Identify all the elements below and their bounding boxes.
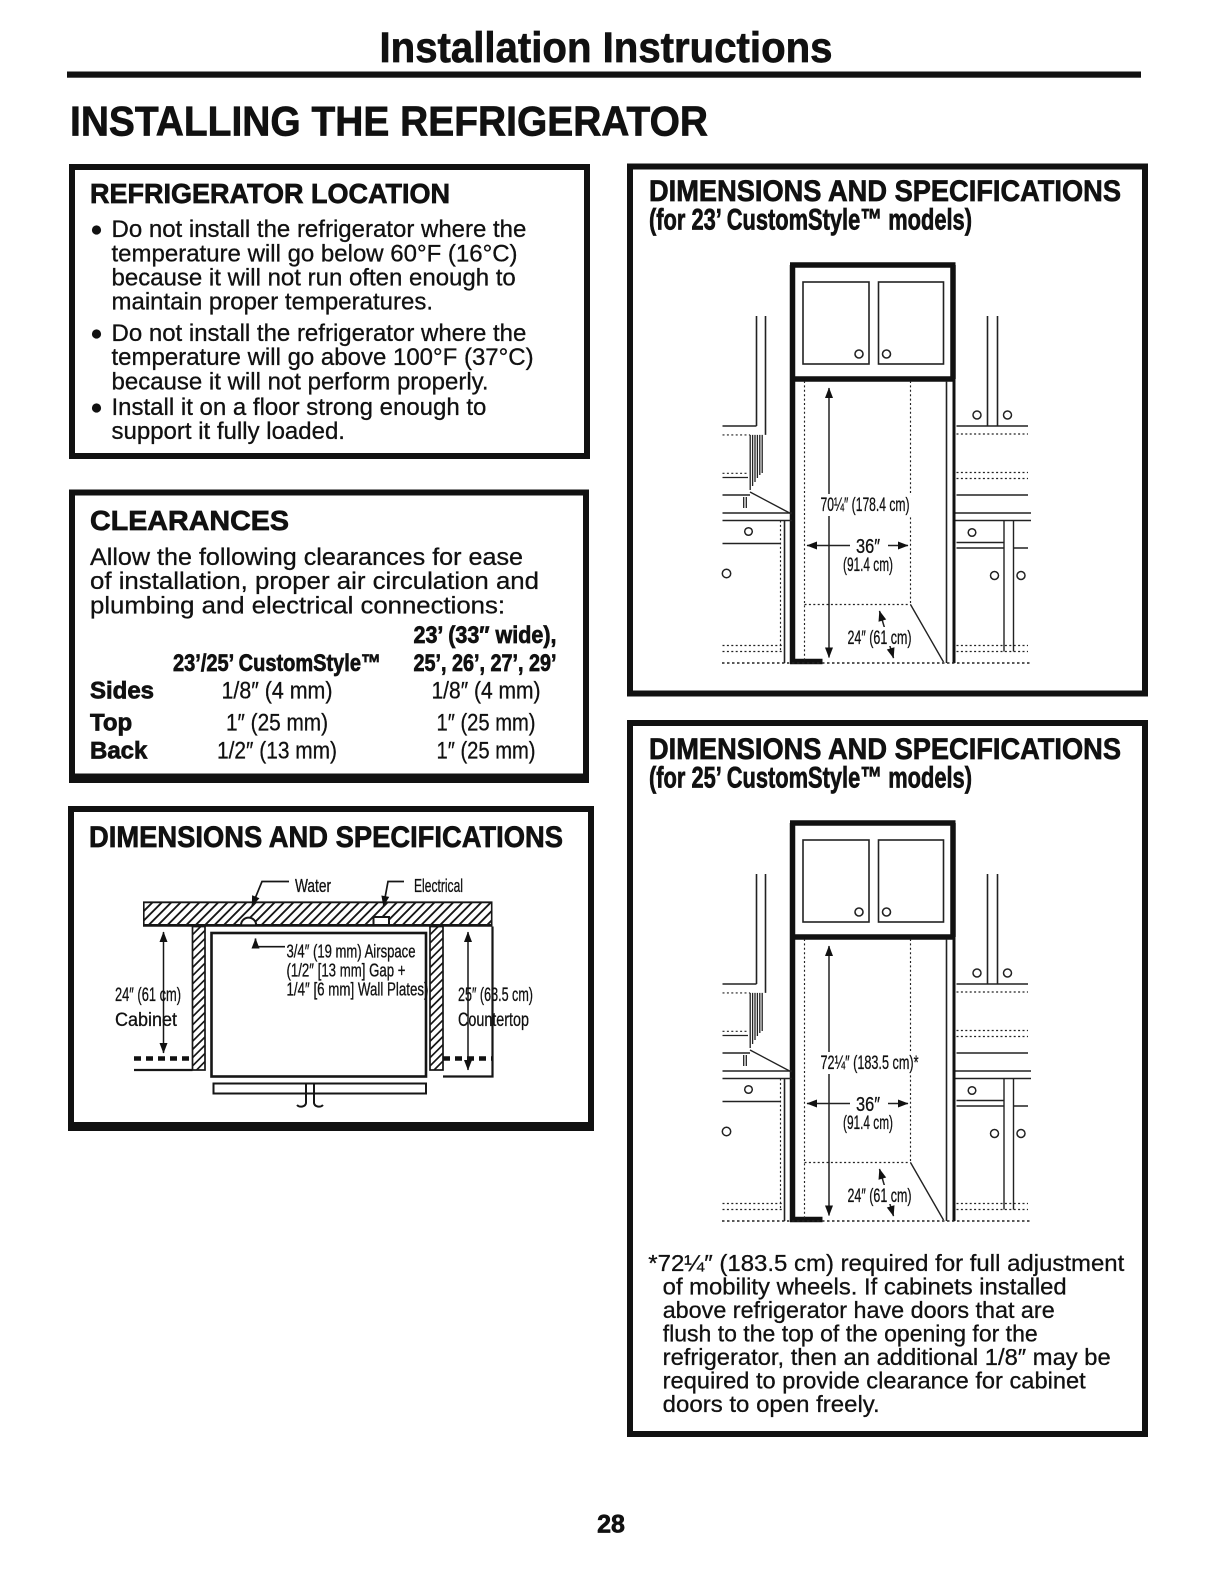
svg-text:CLEARANCES: CLEARANCES <box>90 505 289 536</box>
svg-text:Do not install the refrigerato: Do not install the refrigerator where th… <box>112 216 527 243</box>
svg-text:3/4″ (19 mm) Airspace: 3/4″ (19 mm) Airspace <box>287 942 416 962</box>
svg-text:REFRIGERATOR LOCATION: REFRIGERATOR LOCATION <box>90 178 450 209</box>
svg-text:temperature will go below 60°F: temperature will go below 60°F (16°C) <box>112 240 518 267</box>
svg-text:24″ (61 cm): 24″ (61 cm) <box>848 628 912 649</box>
svg-text:DIMENSIONS AND SPECIFICATIONS: DIMENSIONS AND SPECIFICATIONS <box>89 821 563 854</box>
svg-text:28: 28 <box>597 1511 625 1539</box>
svg-text:Electrical: Electrical <box>414 876 463 896</box>
svg-text:temperature will go above 100°: temperature will go above 100°F (37°C) <box>112 344 534 371</box>
svg-text:flush to the top of the openin: flush to the top of the opening for the <box>663 1321 1038 1347</box>
svg-text:1″ (25 mm): 1″ (25 mm) <box>437 738 536 765</box>
svg-text:1″ (25 mm): 1″ (25 mm) <box>226 710 328 737</box>
svg-text:Countertop: Countertop <box>458 1010 529 1031</box>
svg-text:1/2″ (13 mm): 1/2″ (13 mm) <box>217 738 337 765</box>
svg-text:1/8″ (4 mm): 1/8″ (4 mm) <box>222 678 333 705</box>
svg-text:of mobility wheels. If cabinet: of mobility wheels. If cabinets installe… <box>663 1274 1067 1300</box>
svg-text:support it fully loaded.: support it fully loaded. <box>112 418 345 445</box>
svg-text:23’/25’ CustomStyle™: 23’/25’ CustomStyle™ <box>173 650 381 677</box>
svg-text:Back: Back <box>90 738 148 765</box>
svg-text:of installation, proper air ci: of installation, proper air circulation … <box>90 568 539 595</box>
svg-text:(for 25’ CustomStyle™ models): (for 25’ CustomStyle™ models) <box>649 762 972 795</box>
svg-text:Install it on a floor strong e: Install it on a floor strong enough to <box>112 394 487 421</box>
svg-text:Sides: Sides <box>90 678 154 705</box>
svg-text:refrigerator, then an addition: refrigerator, then an additional 1/8″ ma… <box>663 1344 1111 1370</box>
svg-text:24″ (61 cm): 24″ (61 cm) <box>848 1186 912 1207</box>
svg-text:Allow the following clearances: Allow the following clearances for ease <box>90 544 523 571</box>
svg-text:because it will not perform pr: because it will not perform properly. <box>112 368 489 395</box>
svg-text:(for 23’ CustomStyle™ models): (for 23’ CustomStyle™ models) <box>649 204 972 237</box>
svg-text:1/4″ [6 mm] Wall Plates): 1/4″ [6 mm] Wall Plates) <box>287 980 429 1000</box>
svg-text:1/8″ (4 mm): 1/8″ (4 mm) <box>432 678 541 705</box>
svg-text:(91.4 cm): (91.4 cm) <box>843 1113 893 1134</box>
svg-text:because it will not run often: because it will not run often enough to <box>112 265 516 292</box>
svg-text:(1/2″ [13 mm] Gap +: (1/2″ [13 mm] Gap + <box>287 961 406 981</box>
svg-text:Do not install the refrigerato: Do not install the refrigerator where th… <box>112 320 527 347</box>
svg-text:25’, 26’, 27’, 29’: 25’, 26’, 27’, 29’ <box>414 650 557 677</box>
svg-text:1″ (25 mm): 1″ (25 mm) <box>437 710 536 737</box>
svg-text:Cabinet: Cabinet <box>115 1010 178 1031</box>
svg-text:72¼″ (183.5 cm)*: 72¼″ (183.5 cm)* <box>821 1053 919 1074</box>
svg-text:above refrigerator have doors: above refrigerator have doors that are <box>663 1297 1055 1323</box>
svg-text:required to provide clearance: required to provide clearance for cabine… <box>663 1368 1086 1394</box>
svg-text:maintain proper temperatures.: maintain proper temperatures. <box>112 289 434 316</box>
svg-text:doors to open freely.: doors to open freely. <box>663 1391 880 1417</box>
svg-text:(91.4 cm): (91.4 cm) <box>843 555 893 576</box>
svg-text:70¼″ (178.4 cm): 70¼″ (178.4 cm) <box>821 495 910 516</box>
svg-text:23’ (33″ wide),: 23’ (33″ wide), <box>414 622 557 649</box>
svg-text:INSTALLING THE REFRIGERATOR: INSTALLING THE REFRIGERATOR <box>70 98 708 145</box>
svg-text:Water: Water <box>295 876 331 896</box>
svg-text:Installation Instructions: Installation Instructions <box>380 24 833 72</box>
svg-text:*72¼″ (183.5 cm) required for: *72¼″ (183.5 cm) required for full adjus… <box>648 1250 1124 1276</box>
svg-text:24″ (61 cm): 24″ (61 cm) <box>115 985 181 1006</box>
svg-text:plumbing and electrical connec: plumbing and electrical connections: <box>90 592 505 619</box>
svg-text:25″ (63.5 cm): 25″ (63.5 cm) <box>458 985 533 1006</box>
svg-text:Top: Top <box>90 710 132 737</box>
